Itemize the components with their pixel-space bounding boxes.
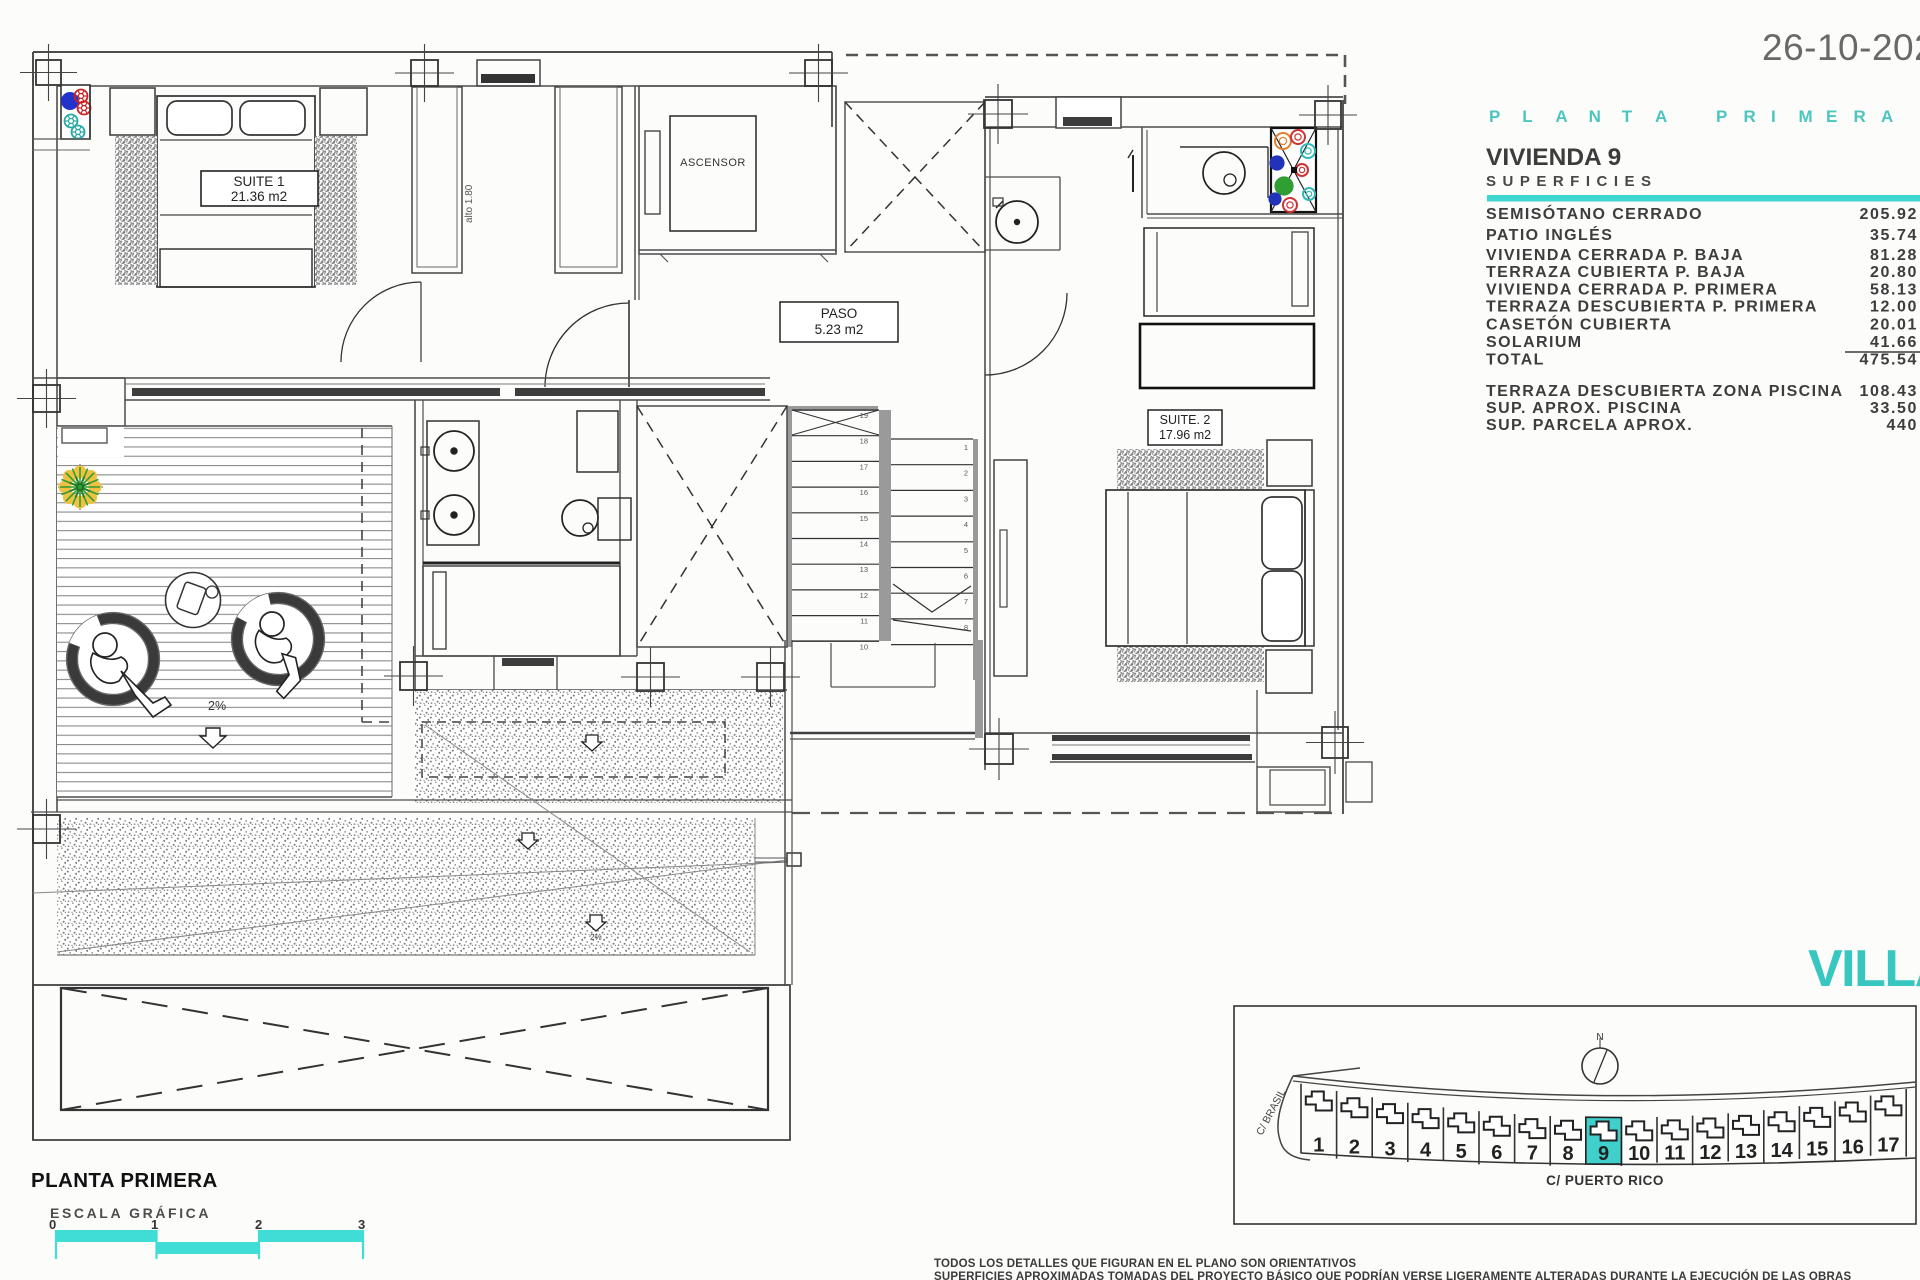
svg-text:T: T — [1622, 107, 1633, 126]
svg-text:26-10-2022: 26-10-2022 — [1762, 27, 1920, 68]
svg-text:5.23 m2: 5.23 m2 — [815, 322, 864, 337]
svg-text:SUP. PARCELA APROX.: SUP. PARCELA APROX. — [1486, 417, 1693, 434]
svg-text:11: 11 — [1664, 1142, 1685, 1164]
svg-text:16: 16 — [860, 488, 868, 497]
svg-text:VIVIENDA CERRADA P. BAJA: VIVIENDA CERRADA P. BAJA — [1486, 247, 1744, 264]
svg-text:440: 440 — [1887, 417, 1919, 434]
svg-text:12: 12 — [860, 591, 868, 600]
svg-text:L: L — [1522, 107, 1532, 126]
svg-text:SOLARIUM: SOLARIUM — [1486, 334, 1583, 351]
svg-text:58.13: 58.13 — [1870, 282, 1918, 299]
svg-text:8: 8 — [1562, 1143, 1573, 1165]
svg-text:10: 10 — [860, 642, 868, 651]
svg-text:SUPERFICIES: SUPERFICIES — [1486, 173, 1658, 190]
svg-text:CASETÓN CUBIERTA: CASETÓN CUBIERTA — [1486, 315, 1673, 334]
svg-text:475.54: 475.54 — [1859, 352, 1918, 369]
svg-text:0: 0 — [49, 1217, 56, 1232]
svg-text:alto 1.80: alto 1.80 — [464, 184, 475, 223]
svg-text:81.28: 81.28 — [1870, 247, 1918, 264]
svg-text:P: P — [1489, 107, 1500, 126]
svg-text:PASO: PASO — [821, 306, 858, 321]
svg-text:6: 6 — [1491, 1142, 1502, 1164]
svg-text:1: 1 — [1313, 1135, 1324, 1157]
svg-text:2: 2 — [1349, 1137, 1360, 1159]
svg-text:ESCALA GRÁFICA: ESCALA GRÁFICA — [50, 1205, 211, 1221]
svg-text:1: 1 — [151, 1217, 158, 1232]
svg-text:13: 13 — [1735, 1141, 1757, 1163]
svg-text:205.92: 205.92 — [1859, 206, 1918, 223]
svg-text:TERRAZA CUBIERTA P. BAJA: TERRAZA CUBIERTA P. BAJA — [1486, 264, 1746, 281]
svg-text:E: E — [1826, 107, 1837, 126]
svg-text:2: 2 — [964, 469, 968, 478]
svg-text:3: 3 — [358, 1217, 365, 1232]
svg-text:SUITE 1: SUITE 1 — [233, 174, 284, 189]
svg-text:19: 19 — [860, 411, 868, 420]
svg-text:N: N — [1589, 107, 1601, 126]
svg-text:R: R — [1744, 107, 1756, 126]
svg-text:15: 15 — [1806, 1138, 1828, 1160]
svg-text:P: P — [1716, 107, 1727, 126]
svg-text:2%: 2% — [208, 699, 226, 713]
svg-text:A: A — [1881, 107, 1893, 126]
svg-text:13: 13 — [860, 565, 868, 574]
svg-text:108.43: 108.43 — [1859, 383, 1918, 400]
svg-text:PATIO INGLÉS: PATIO INGLÉS — [1486, 225, 1613, 244]
svg-text:7: 7 — [964, 597, 968, 606]
svg-text:SUPERFICIES APROXIMADAS TOMADA: SUPERFICIES APROXIMADAS TOMADAS DEL PROY… — [934, 1270, 1852, 1280]
svg-text:6: 6 — [964, 572, 968, 581]
svg-text:TOTAL: TOTAL — [1486, 352, 1545, 369]
svg-text:3: 3 — [964, 494, 968, 503]
svg-text:17: 17 — [1877, 1135, 1899, 1157]
svg-text:11: 11 — [860, 617, 868, 626]
svg-text:16: 16 — [1842, 1137, 1864, 1159]
svg-text:ASCENSOR: ASCENSOR — [680, 157, 746, 169]
svg-text:41.66: 41.66 — [1870, 334, 1918, 351]
svg-text:3: 3 — [1384, 1138, 1395, 1160]
svg-text:N: N — [1596, 1032, 1603, 1043]
svg-text:17: 17 — [860, 462, 868, 471]
svg-text:15: 15 — [860, 514, 868, 523]
svg-text:SUP. APROX. PISCINA: SUP. APROX. PISCINA — [1486, 400, 1682, 417]
svg-text:9: 9 — [1598, 1143, 1609, 1165]
svg-text:A: A — [1655, 107, 1667, 126]
svg-text:VIVIENDA 9: VIVIENDA 9 — [1486, 144, 1621, 171]
svg-text:SEMISÓTANO CERRADO: SEMISÓTANO CERRADO — [1486, 204, 1703, 223]
svg-text:33.50: 33.50 — [1870, 400, 1918, 417]
svg-text:7: 7 — [1527, 1142, 1538, 1164]
svg-text:I: I — [1771, 107, 1776, 126]
svg-text:R: R — [1854, 107, 1866, 126]
svg-text:20.01: 20.01 — [1870, 317, 1918, 334]
svg-text:2: 2 — [255, 1217, 262, 1232]
svg-text:TERRAZA DESCUBIERTA ZONA PISC: TERRAZA DESCUBIERTA ZONA PISCINA — [1486, 383, 1843, 400]
svg-text:12: 12 — [1699, 1142, 1721, 1164]
svg-text:SUITE. 2: SUITE. 2 — [1160, 413, 1211, 427]
svg-text:5: 5 — [1456, 1141, 1467, 1163]
svg-text:2%: 2% — [590, 933, 602, 942]
svg-text:TODOS LOS DETALLES QUE FIGURAN: TODOS LOS DETALLES QUE FIGURAN EN EL PLA… — [934, 1258, 1356, 1270]
svg-text:VIVIENDA CERRADA P. PRIMERA: VIVIENDA CERRADA P. PRIMERA — [1486, 282, 1778, 299]
svg-text:C/ PUERTO RICO: C/ PUERTO RICO — [1546, 1173, 1664, 1188]
svg-text:21.36 m2: 21.36 m2 — [231, 189, 287, 204]
svg-text:4: 4 — [964, 520, 968, 529]
svg-text:35.74: 35.74 — [1870, 227, 1918, 244]
svg-text:M: M — [1799, 107, 1813, 126]
svg-text:12.00: 12.00 — [1870, 299, 1918, 316]
svg-text:1: 1 — [964, 443, 968, 452]
svg-text:17.96 m2: 17.96 m2 — [1159, 428, 1211, 442]
svg-text:4: 4 — [1420, 1140, 1432, 1162]
svg-text:TERRAZA DESCUBIERTA P. PRIMERA: TERRAZA DESCUBIERTA P. PRIMERA — [1486, 299, 1818, 316]
svg-text:VILLAS: VILLAS — [1808, 940, 1920, 998]
svg-text:10: 10 — [1628, 1143, 1650, 1165]
svg-text:14: 14 — [860, 540, 868, 549]
svg-text:5: 5 — [964, 546, 968, 555]
svg-text:18: 18 — [860, 437, 868, 446]
svg-text:PLANTA PRIMERA: PLANTA PRIMERA — [31, 1169, 218, 1192]
svg-text:14: 14 — [1770, 1140, 1793, 1162]
svg-text:A: A — [1555, 107, 1567, 126]
svg-text:20.80: 20.80 — [1870, 264, 1918, 281]
